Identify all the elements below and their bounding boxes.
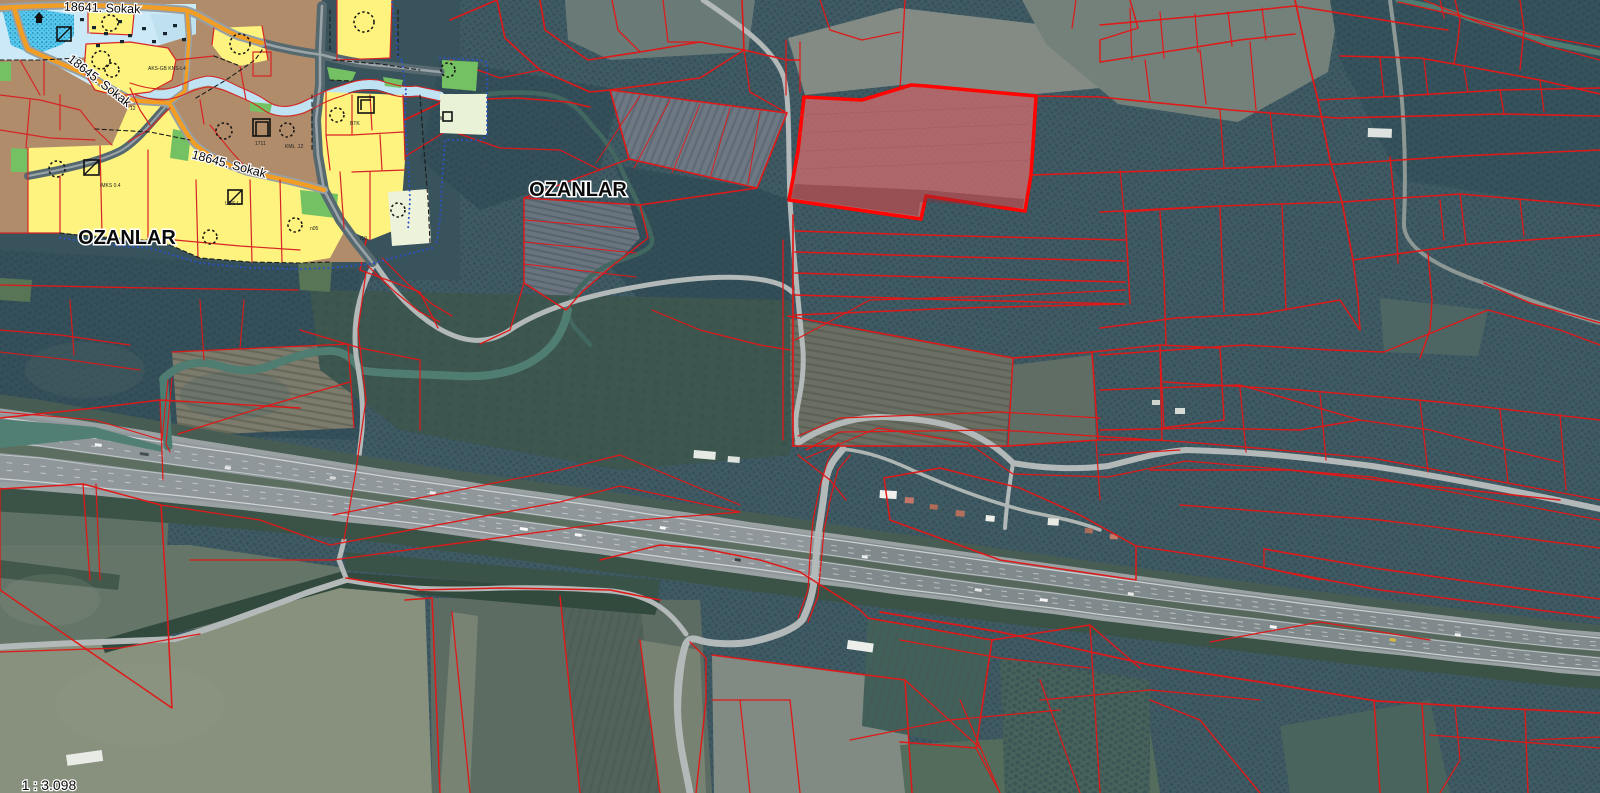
svg-text:18641. Sokak: 18641. Sokak [64, 0, 142, 16]
svg-text:KML .12: KML .12 [285, 144, 304, 150]
svg-text:12: 12 [130, 106, 136, 112]
svg-text:OZANLAR: OZANLAR [78, 227, 176, 249]
svg-text:1 : 3.098: 1 : 3.098 [22, 777, 77, 793]
svg-text:IMKS 0.4: IMKS 0.4 [100, 183, 121, 189]
svg-text:OZANLAR: OZANLAR [529, 179, 627, 201]
svg-text:UBS-L: UBS-L [225, 201, 240, 207]
svg-text:1711: 1711 [255, 141, 266, 147]
svg-text:f10: f10 [360, 236, 367, 242]
svg-text:BTK: BTK [350, 121, 360, 127]
svg-text:AKS-GB KNS-L4: AKS-GB KNS-L4 [148, 66, 186, 72]
svg-text:n05: n05 [310, 226, 319, 232]
